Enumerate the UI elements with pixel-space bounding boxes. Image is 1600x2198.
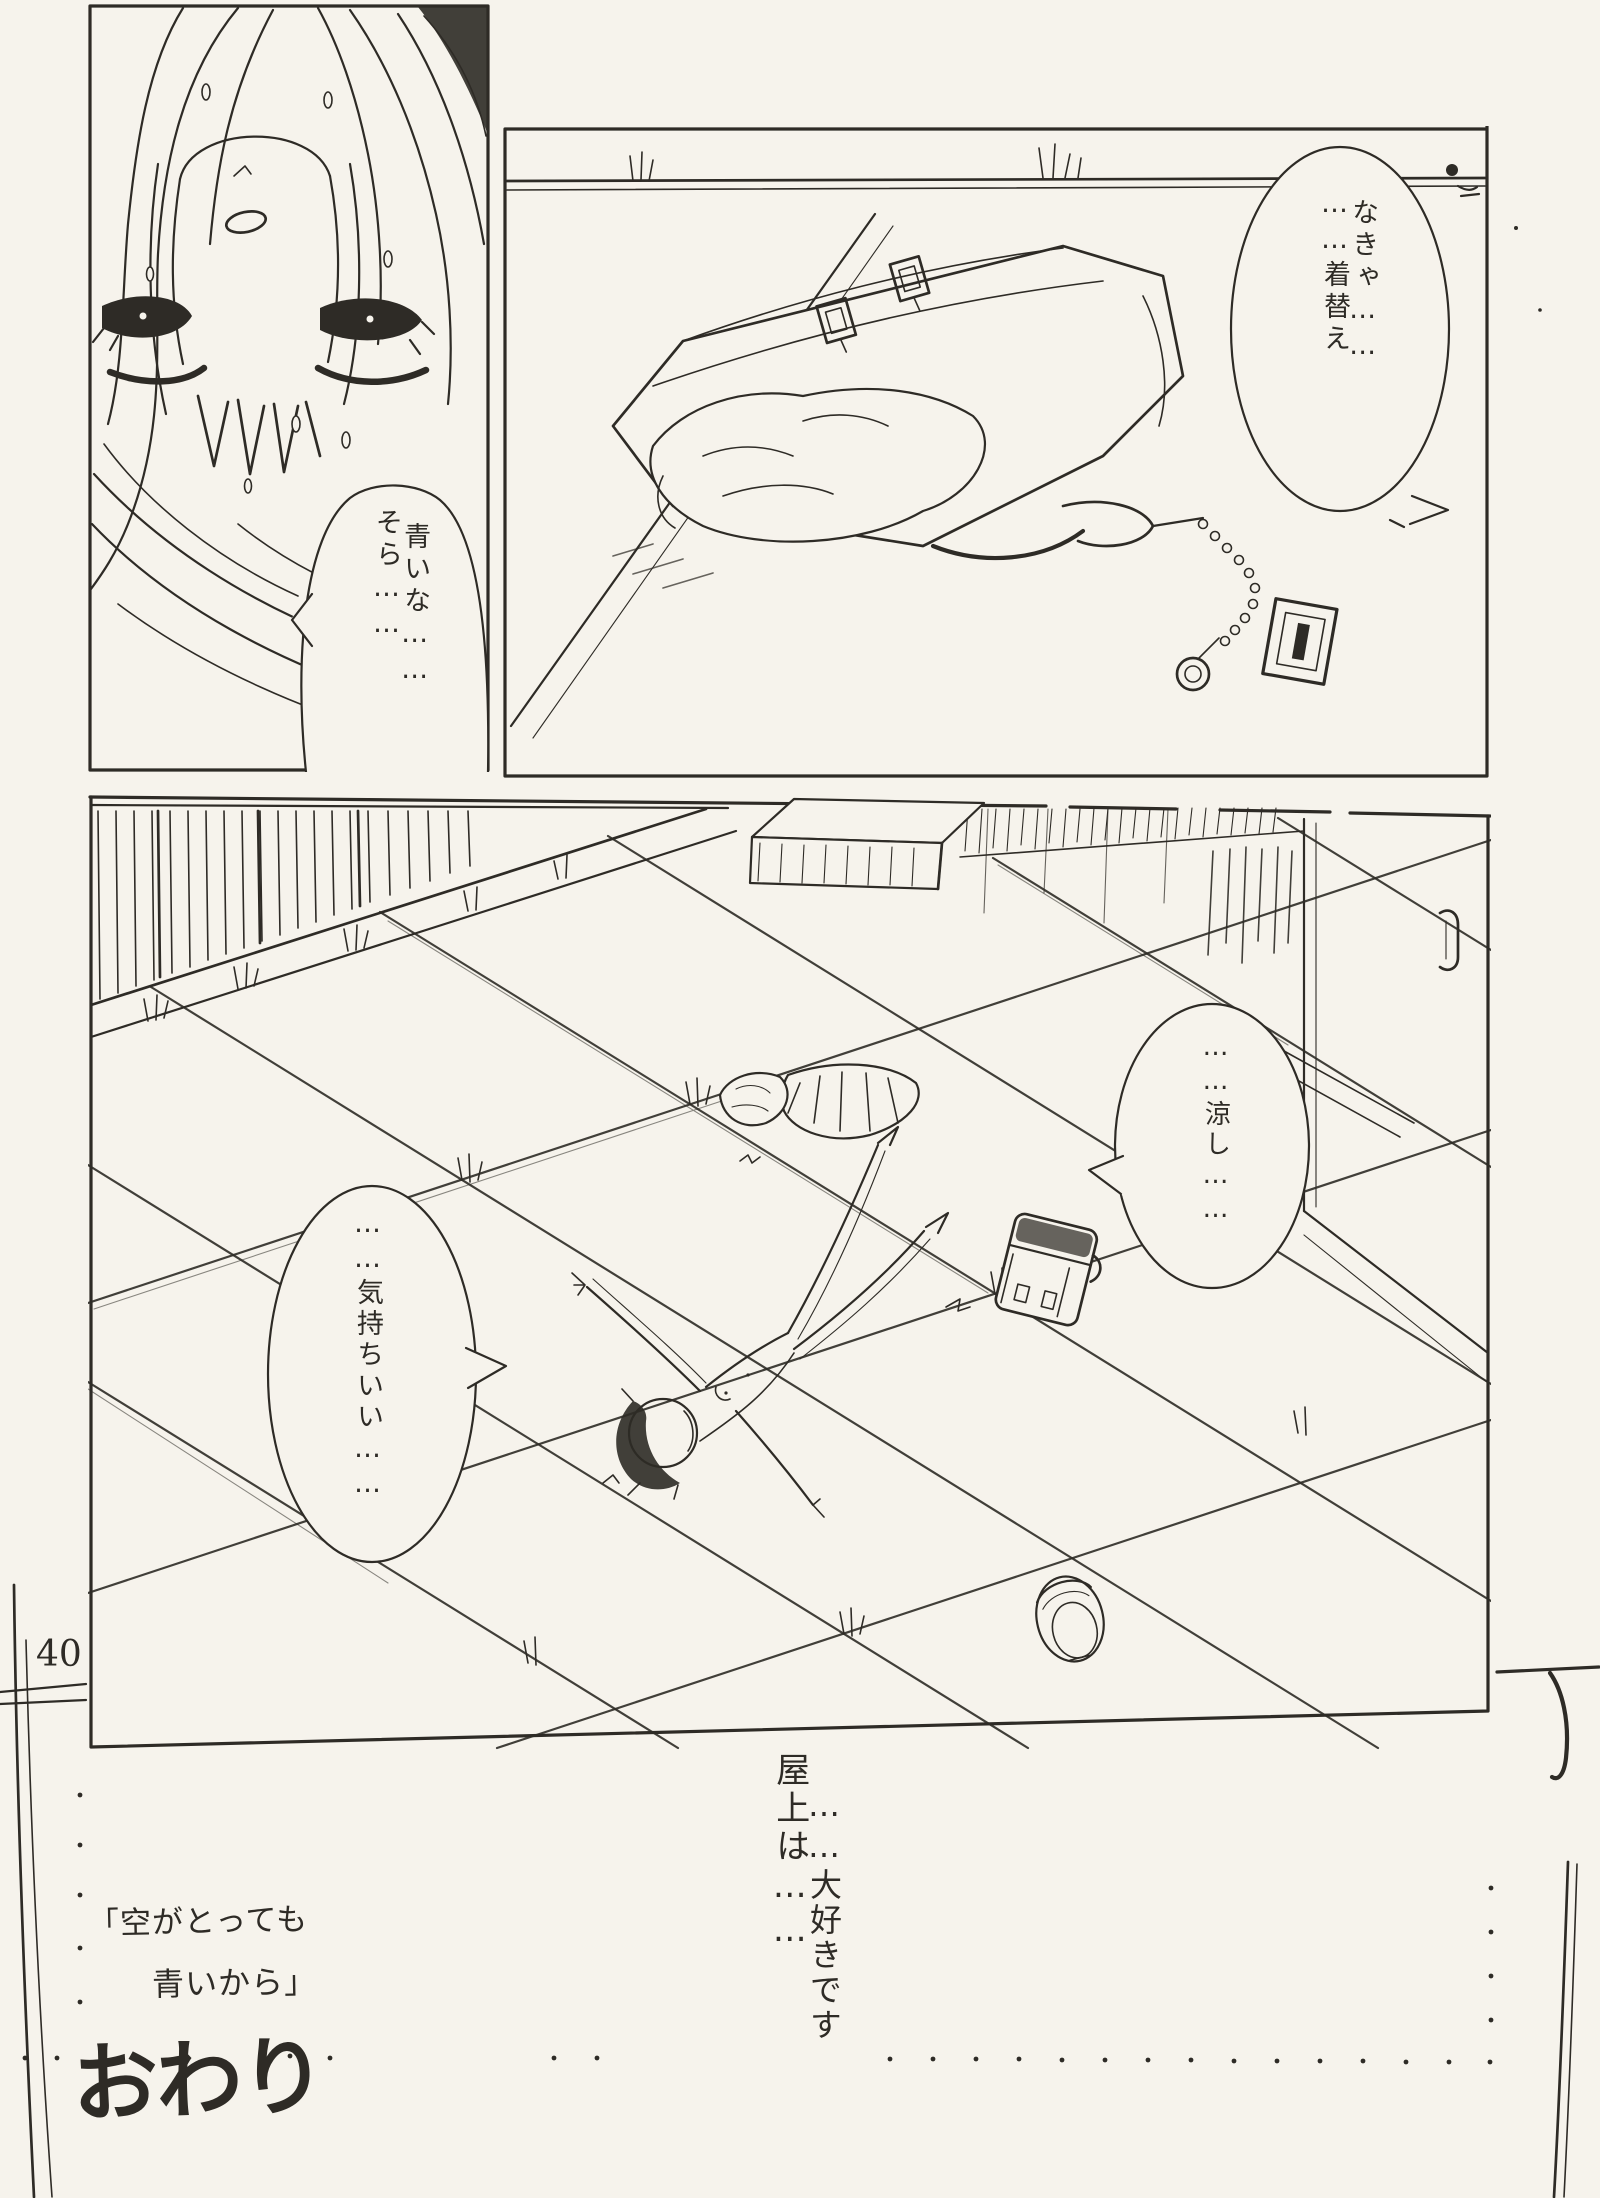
page-number: 40 (36, 1634, 82, 1675)
end-mark: おわり (70, 2006, 326, 2140)
chevron-mark (1390, 496, 1448, 527)
rooftop-caption: 屋上は…… ……大好きです (690, 1752, 840, 2156)
right-page-edge (1497, 1667, 1599, 2197)
caption-line: 屋上は…… (771, 1752, 806, 2156)
ink-mark (1446, 164, 1479, 196)
story-title-line-2: 青いから」 (152, 1957, 318, 2006)
manga-page: そら…… 青いな…… ……着替え なきゃ…… ……涼し…… ……気持ちいい…… (0, 0, 1600, 2198)
story-title-line-1: 「空がとっても (88, 1894, 309, 1944)
caption-line: ……大好きです (807, 1752, 840, 2156)
